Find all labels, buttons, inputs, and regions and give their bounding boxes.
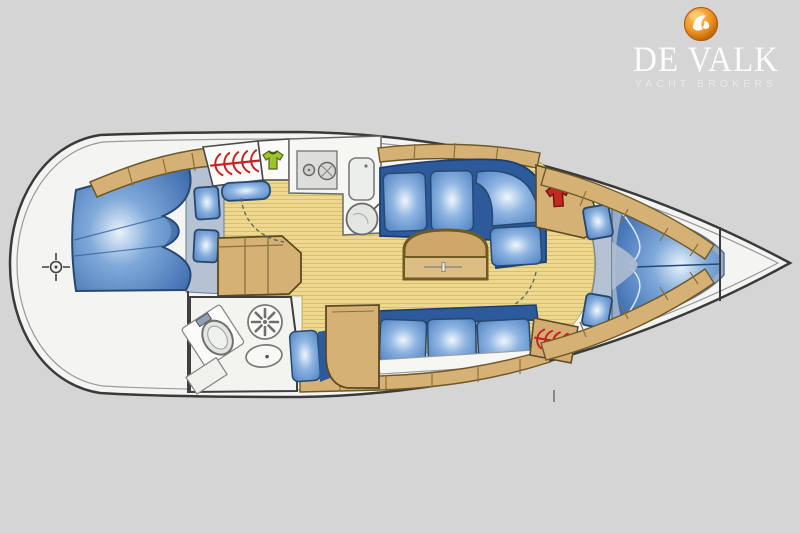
brand-title: DE VALK xyxy=(633,39,779,79)
round-basin xyxy=(347,204,378,235)
fwd-pillow-1 xyxy=(582,204,613,240)
extractor-fan xyxy=(248,305,282,339)
aft-pillow-2 xyxy=(193,229,219,262)
l-settee-cushion-3 xyxy=(490,226,542,267)
burner-dot xyxy=(308,169,310,171)
table-handle-pin xyxy=(442,263,445,272)
companionway-steps xyxy=(218,236,301,296)
brand-subtitle: YACHT BROKERS xyxy=(635,78,777,90)
salon-table xyxy=(404,230,487,279)
yacht-floorplan-canvas: DE VALK YACHT BROKERS xyxy=(0,0,800,533)
screenshot-root: DE VALK YACHT BROKERS xyxy=(0,0,800,533)
galley-sink xyxy=(349,158,374,200)
l-settee-cushion-1 xyxy=(383,172,427,231)
faucet-dot xyxy=(364,164,367,167)
l-settee-cushion-2 xyxy=(430,171,473,232)
aft-pillow-1 xyxy=(194,186,220,220)
head-compartment xyxy=(181,297,297,394)
settee-cushion-1 xyxy=(379,319,426,363)
nav-unit xyxy=(326,305,379,388)
fridge-top-lid xyxy=(222,181,271,201)
nav-seat-cushion xyxy=(289,330,320,382)
falcon-icon xyxy=(685,8,718,41)
